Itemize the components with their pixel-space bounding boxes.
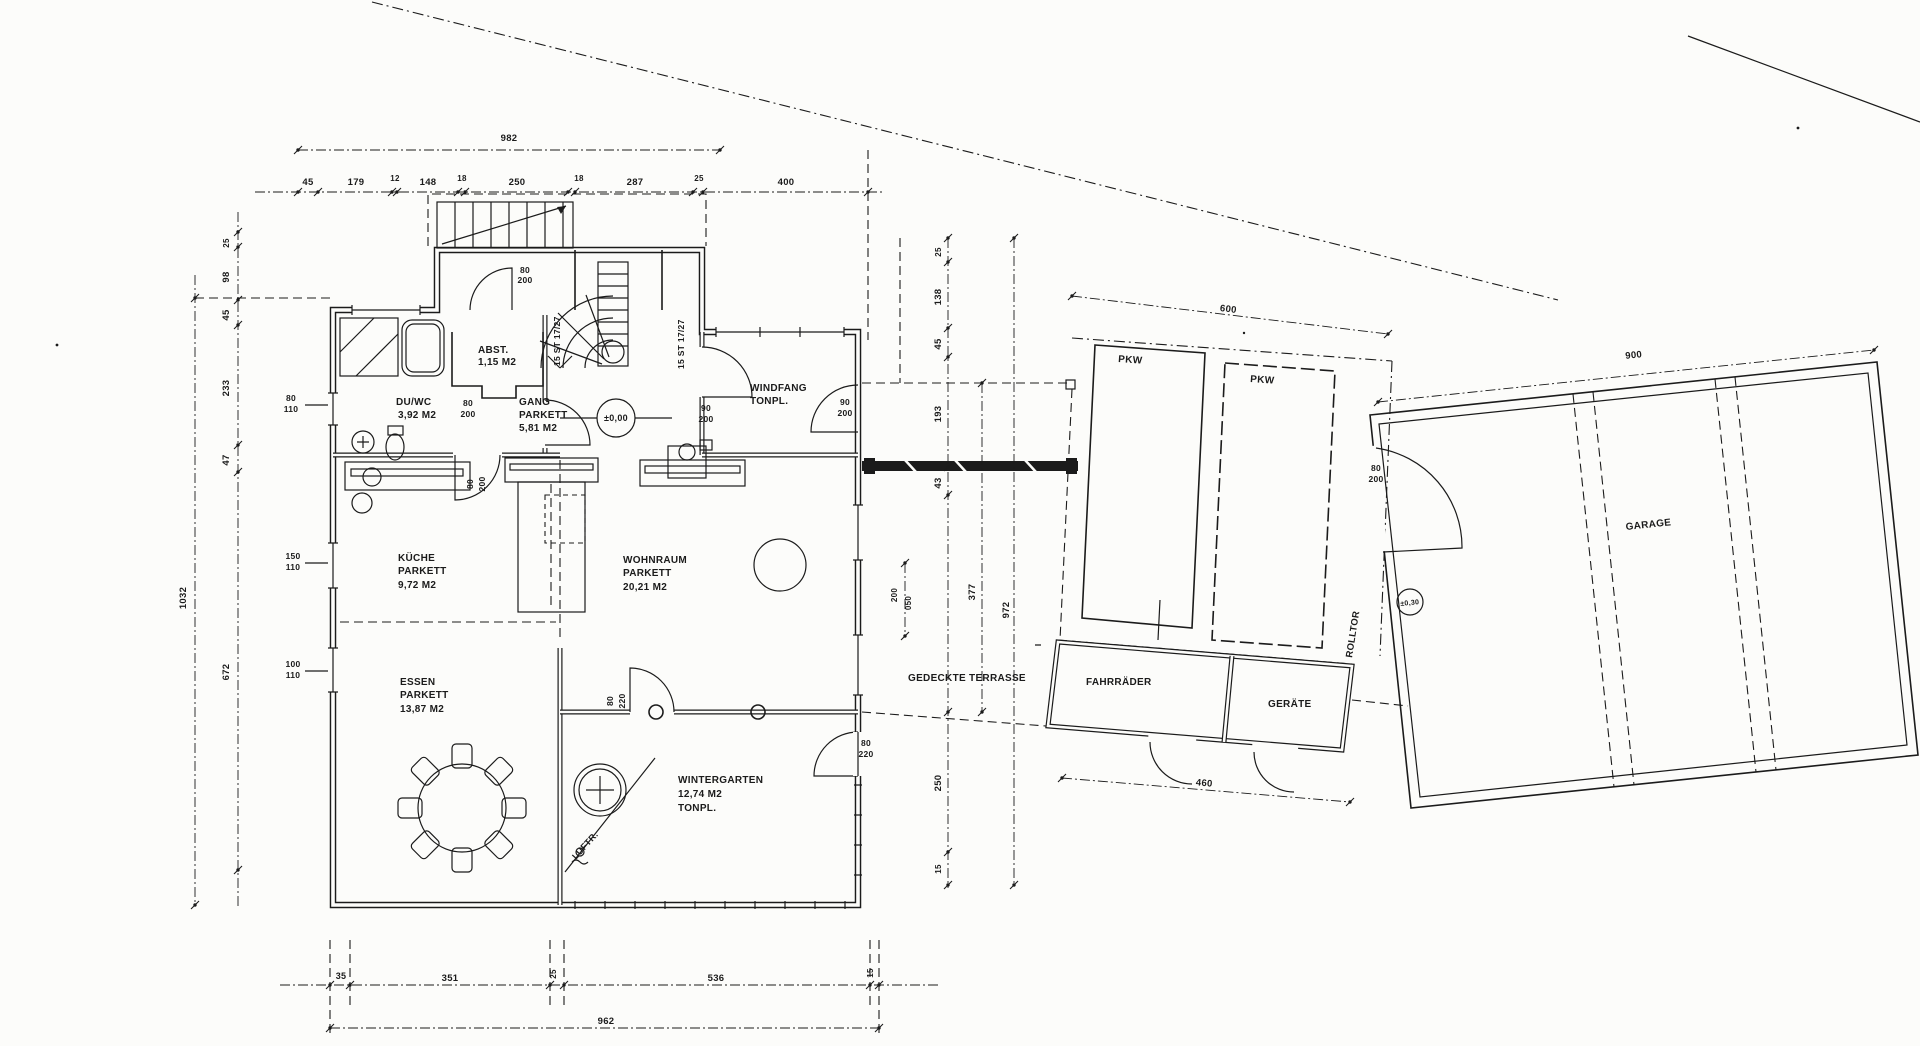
room-pkw-1: PKW bbox=[1118, 354, 1143, 367]
dim-top-total-982: 982 bbox=[501, 133, 518, 144]
room-kueche: KÜCHE bbox=[398, 551, 435, 564]
door-gang-windfang bbox=[702, 347, 752, 397]
room-fahrraeder: FAHRRÄDER bbox=[1086, 675, 1152, 688]
dim-left-25: 25 bbox=[222, 238, 231, 248]
dim-left-98: 98 bbox=[221, 271, 232, 282]
door-windfang-ost-200: 200 bbox=[837, 408, 852, 418]
level-garage: ±0,30 bbox=[1400, 599, 1420, 608]
dim-left-47: 47 bbox=[221, 454, 232, 465]
dim-right-250: 250 bbox=[933, 775, 944, 792]
window-windfang-north bbox=[716, 327, 844, 337]
door-annex-80: 80 bbox=[520, 265, 530, 275]
room-geraete: GERÄTE bbox=[1268, 697, 1312, 710]
room-pkw-2: PKW bbox=[1250, 374, 1275, 387]
door-kueche-80: 80 bbox=[465, 479, 475, 489]
door-wintergarten-80: 80 bbox=[605, 696, 615, 706]
door-wintergarten-220: 220 bbox=[617, 693, 627, 708]
dining-chair bbox=[483, 756, 514, 787]
dim-chain-5 bbox=[978, 379, 986, 716]
shower bbox=[340, 318, 398, 376]
dim-top-45: 45 bbox=[302, 177, 314, 188]
room-essen-floor: PARKETT bbox=[400, 690, 449, 701]
dim-right-43: 43 bbox=[933, 477, 944, 488]
dim-left-672: 672 bbox=[221, 664, 232, 681]
floor-plan-canvas: 9824517912148182501828725400259845233476… bbox=[0, 0, 1920, 1046]
dim-right-377: 377 bbox=[967, 584, 978, 601]
door-terrasse-220: 220 bbox=[858, 749, 873, 759]
dim-right-45: 45 bbox=[933, 338, 944, 350]
room-abst-area: 1,15 M2 bbox=[478, 357, 516, 368]
dim-right-total-972: 972 bbox=[1001, 602, 1012, 619]
dim-top-250: 250 bbox=[509, 177, 526, 188]
window-essen-100 bbox=[305, 648, 338, 692]
room-kueche-area: 9,72 M2 bbox=[398, 580, 436, 591]
dim-left-45: 45 bbox=[221, 309, 232, 321]
dim-right-15: 15 bbox=[934, 864, 943, 874]
dim-top-12: 12 bbox=[390, 174, 400, 183]
room-terrasse: GEDECKTE TERRASSE bbox=[908, 673, 1026, 684]
rolltor-arc bbox=[1376, 448, 1462, 552]
fireplace bbox=[668, 440, 712, 478]
dim-chain-8 bbox=[280, 981, 940, 989]
win-duwc-80: 80 bbox=[286, 393, 296, 403]
room-wohnraum-floor: PARKETT bbox=[623, 568, 672, 579]
door-windfang-ost-90: 90 bbox=[840, 397, 850, 407]
win-essen-110a: 110 bbox=[286, 562, 301, 572]
interior-walls bbox=[333, 250, 858, 905]
room-wintergarten: WINTERGARTEN bbox=[678, 775, 763, 786]
room-duwc: DU/WC bbox=[396, 397, 431, 408]
dining-table bbox=[398, 744, 526, 872]
dim-right-138: 138 bbox=[933, 289, 944, 306]
dim-bottom-25: 25 bbox=[549, 969, 558, 979]
stair-right: 15 ST 17/27 bbox=[676, 319, 686, 369]
door-kueche-200: 200 bbox=[477, 476, 487, 491]
dining-chair bbox=[410, 829, 441, 860]
dim-top-179: 179 bbox=[348, 177, 365, 188]
sofa-round bbox=[754, 539, 806, 591]
dim-bottom-15: 15 bbox=[866, 968, 875, 978]
dim-right-25: 25 bbox=[934, 247, 943, 257]
room-abst: ABST. bbox=[478, 345, 508, 356]
door-annex-entry bbox=[470, 268, 512, 310]
dim-bottom-total-962: 962 bbox=[598, 1016, 615, 1027]
room-windfang-floor: TONPL. bbox=[750, 396, 788, 407]
door-gang-windfang-90: 90 bbox=[701, 403, 711, 413]
dim-bottom-351: 351 bbox=[442, 973, 459, 984]
room-garage: GARAGE bbox=[1625, 517, 1672, 533]
dim-right-200: 200 bbox=[890, 588, 899, 602]
dim-top-18a: 18 bbox=[457, 174, 467, 183]
door-terrasse-80: 80 bbox=[861, 738, 871, 748]
door-annex-200: 200 bbox=[517, 275, 532, 285]
dim-chain-2 bbox=[191, 275, 199, 909]
dim-top-25: 25 bbox=[694, 174, 704, 183]
room-essen: ESSEN bbox=[400, 677, 435, 688]
dimension-lines bbox=[191, 146, 1878, 1032]
dim-right-193: 193 bbox=[933, 406, 944, 423]
dim-900: 900 bbox=[1625, 349, 1643, 362]
stair-left: 15 ST 17/27 bbox=[552, 316, 562, 366]
washbasin bbox=[352, 431, 374, 453]
win-essen-150: 150 bbox=[285, 551, 300, 561]
room-gang-floor: PARKETT bbox=[519, 410, 568, 421]
sideboard bbox=[640, 460, 745, 486]
entry-stair bbox=[428, 194, 706, 248]
dim-chain-4 bbox=[944, 234, 952, 889]
doors bbox=[455, 268, 863, 776]
text-labels: 9824517912148182501828725400259845233476… bbox=[178, 133, 1672, 1027]
room-gang: GANG bbox=[519, 397, 550, 408]
dim-left-total-1032: 1032 bbox=[178, 587, 189, 609]
dim-bottom-536: 536 bbox=[708, 973, 725, 984]
window-duwc bbox=[305, 393, 338, 425]
door-duwc-200: 200 bbox=[460, 409, 475, 419]
room-wohnraum: WOHNRAUM bbox=[623, 555, 687, 566]
floor-plan-page: 9824517912148182501828725400259845233476… bbox=[0, 0, 1920, 1046]
room-wintergarten-floor: TONPL. bbox=[678, 803, 716, 814]
wardrobe bbox=[505, 458, 598, 612]
dim-bottom-35: 35 bbox=[336, 971, 347, 981]
door-garage-200: 200 bbox=[1368, 474, 1383, 484]
dim-top-18b: 18 bbox=[574, 174, 584, 183]
dim-600: 600 bbox=[1219, 303, 1237, 316]
dim-chain-0 bbox=[294, 146, 724, 154]
room-wintergarten-area: 12,74 M2 bbox=[678, 789, 722, 800]
window-essen-150 bbox=[305, 543, 338, 588]
win-essen-110b: 110 bbox=[286, 670, 301, 680]
dining-chair bbox=[410, 756, 441, 787]
dim-top-148: 148 bbox=[420, 177, 437, 188]
room-kueche-floor: PARKETT bbox=[398, 566, 447, 577]
door-duwc-80: 80 bbox=[463, 398, 473, 408]
dim-top-400: 400 bbox=[778, 177, 795, 188]
pkw-stall-2 bbox=[1212, 363, 1335, 648]
win-duwc-110: 110 bbox=[284, 404, 299, 414]
property-lines bbox=[56, 2, 1920, 346]
pkw-stall-1 bbox=[1082, 345, 1205, 628]
dim-right-050: 050 bbox=[904, 596, 913, 610]
terrace-pergola bbox=[862, 458, 1078, 474]
dim-460: 460 bbox=[1195, 777, 1213, 789]
storage-rooms bbox=[1048, 642, 1408, 792]
room-gang-area: 5,81 M2 bbox=[519, 423, 557, 434]
wintergarten-plant bbox=[574, 764, 626, 816]
dim-left-233: 233 bbox=[221, 380, 232, 397]
door-gang-windfang-200: 200 bbox=[698, 414, 713, 424]
door-terrasse-east bbox=[814, 732, 863, 776]
level-zero: ±0,00 bbox=[604, 413, 628, 423]
kitchen-counter bbox=[345, 462, 470, 513]
door-garage-80: 80 bbox=[1371, 463, 1381, 473]
garage bbox=[1361, 362, 1918, 808]
dim-top-287: 287 bbox=[627, 177, 644, 188]
bathtub bbox=[402, 320, 444, 376]
dim-chain-6 bbox=[1010, 234, 1018, 889]
room-duwc-area: 3,92 M2 bbox=[398, 410, 436, 421]
room-windfang: WINDFANG bbox=[750, 383, 807, 394]
carport bbox=[1035, 338, 1392, 664]
label-luftr: LUFTR. bbox=[570, 830, 600, 862]
dining-chair bbox=[483, 829, 514, 860]
house-outer-walls bbox=[333, 250, 858, 905]
room-essen-area: 13,87 M2 bbox=[400, 704, 444, 715]
win-essen-100: 100 bbox=[285, 659, 300, 669]
window-duwc-north bbox=[352, 305, 420, 315]
dim-chain-3 bbox=[234, 212, 242, 908]
label-rolltor: ROLLTOR bbox=[1344, 610, 1362, 658]
dim-chain-1 bbox=[255, 188, 884, 196]
room-wohnraum-area: 20,21 M2 bbox=[623, 582, 667, 593]
